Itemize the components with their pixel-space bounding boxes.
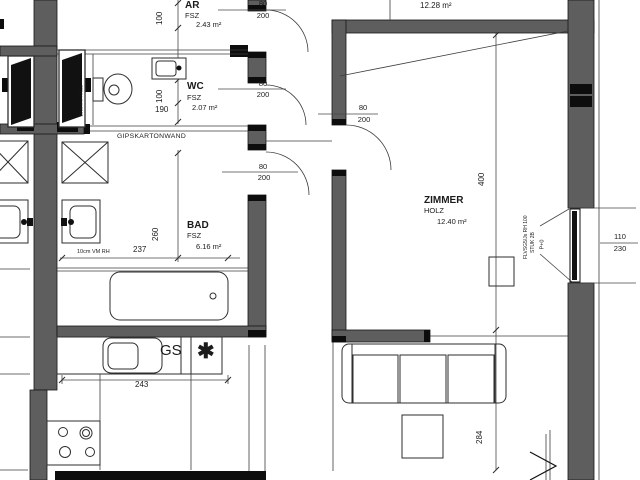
window-height: 230	[604, 245, 636, 253]
wc-door-arc	[266, 85, 306, 125]
ar-door-arc	[266, 10, 308, 52]
floorplan-canvas: AR FSZ 2.43 m² WC FSZ 2.07 m² BAD FSZ 6.…	[0, 0, 640, 480]
handwash-basin	[152, 58, 186, 79]
room-floor-zimmer: HOLZ	[424, 207, 444, 215]
vm-rh-note: 10cm VM RH	[77, 250, 110, 256]
door-arcs	[266, 10, 391, 195]
ar-door-width: 80	[254, 0, 272, 8]
dim-kitchen-width: 243	[135, 381, 148, 389]
zimmer-cabinet	[489, 257, 514, 286]
zimmer-door-arc	[346, 125, 391, 170]
mirror-sink	[0, 200, 33, 243]
room-area-top: 12.28 m²	[420, 2, 452, 10]
dim-bad-width: 237	[133, 246, 146, 254]
vm-wc-note: 10cmVM HR.2s	[80, 85, 85, 117]
room-label-zimmer: ZIMMER	[424, 196, 463, 206]
table	[402, 415, 443, 458]
room-floor-bad: FSZ	[187, 232, 201, 240]
room-area-bad: 6.16 m²	[196, 243, 221, 251]
roof-slope-line	[340, 31, 568, 76]
wc-door-height: 200	[254, 91, 272, 99]
wall-fixture	[570, 84, 592, 94]
room-area-zimmer: 12.40 m²	[437, 218, 467, 226]
dimension-lines	[59, 0, 638, 473]
room-floor-wc: FSZ	[187, 94, 201, 102]
wc-door-width: 80	[254, 80, 272, 88]
dim-wc-height: 100	[156, 90, 164, 103]
room-area-ar: 2.43 m²	[196, 21, 221, 29]
dim-bad-height: 260	[152, 228, 160, 241]
asterisk-symbol: ✱	[197, 341, 215, 362]
window-symbol	[568, 208, 594, 283]
gipskartonwand-label: GIPSKARTONWAND	[117, 134, 186, 141]
ar-door-height: 200	[254, 12, 272, 20]
room-floor-ar: FSZ	[185, 12, 199, 20]
dim-ar-height: 100	[156, 12, 164, 25]
dishwasher-label: GS	[160, 343, 182, 358]
zimmer-door-height: 200	[353, 116, 375, 124]
sofa	[342, 344, 506, 403]
window-width: 110	[604, 233, 636, 241]
bathtub	[110, 272, 228, 320]
room-area-wc: 2.07 m²	[192, 104, 217, 112]
bad-door-width: 80	[254, 163, 272, 171]
dim-zimmer-height: 400	[478, 173, 486, 186]
toilet-fixture	[93, 74, 132, 104]
bottom-wall-bar	[55, 471, 266, 480]
room-label-bad: BAD	[187, 221, 209, 231]
zimmer-door-width: 80	[352, 104, 374, 112]
bathroom-sink	[61, 200, 100, 243]
dim-wc-width: 190	[155, 106, 168, 114]
stove	[47, 421, 100, 465]
window-note-3: P+0	[541, 240, 547, 250]
bad-door-height: 200	[255, 174, 273, 182]
dim-living-height: 284	[476, 431, 484, 444]
window-note-1: FLVSG5/Js RH 100	[524, 215, 529, 259]
window-note-2: STUK 2B	[531, 232, 536, 253]
direction-arrow	[530, 452, 556, 480]
room-label-wc: WC	[187, 82, 204, 92]
room-label-ar: AR	[185, 1, 199, 11]
